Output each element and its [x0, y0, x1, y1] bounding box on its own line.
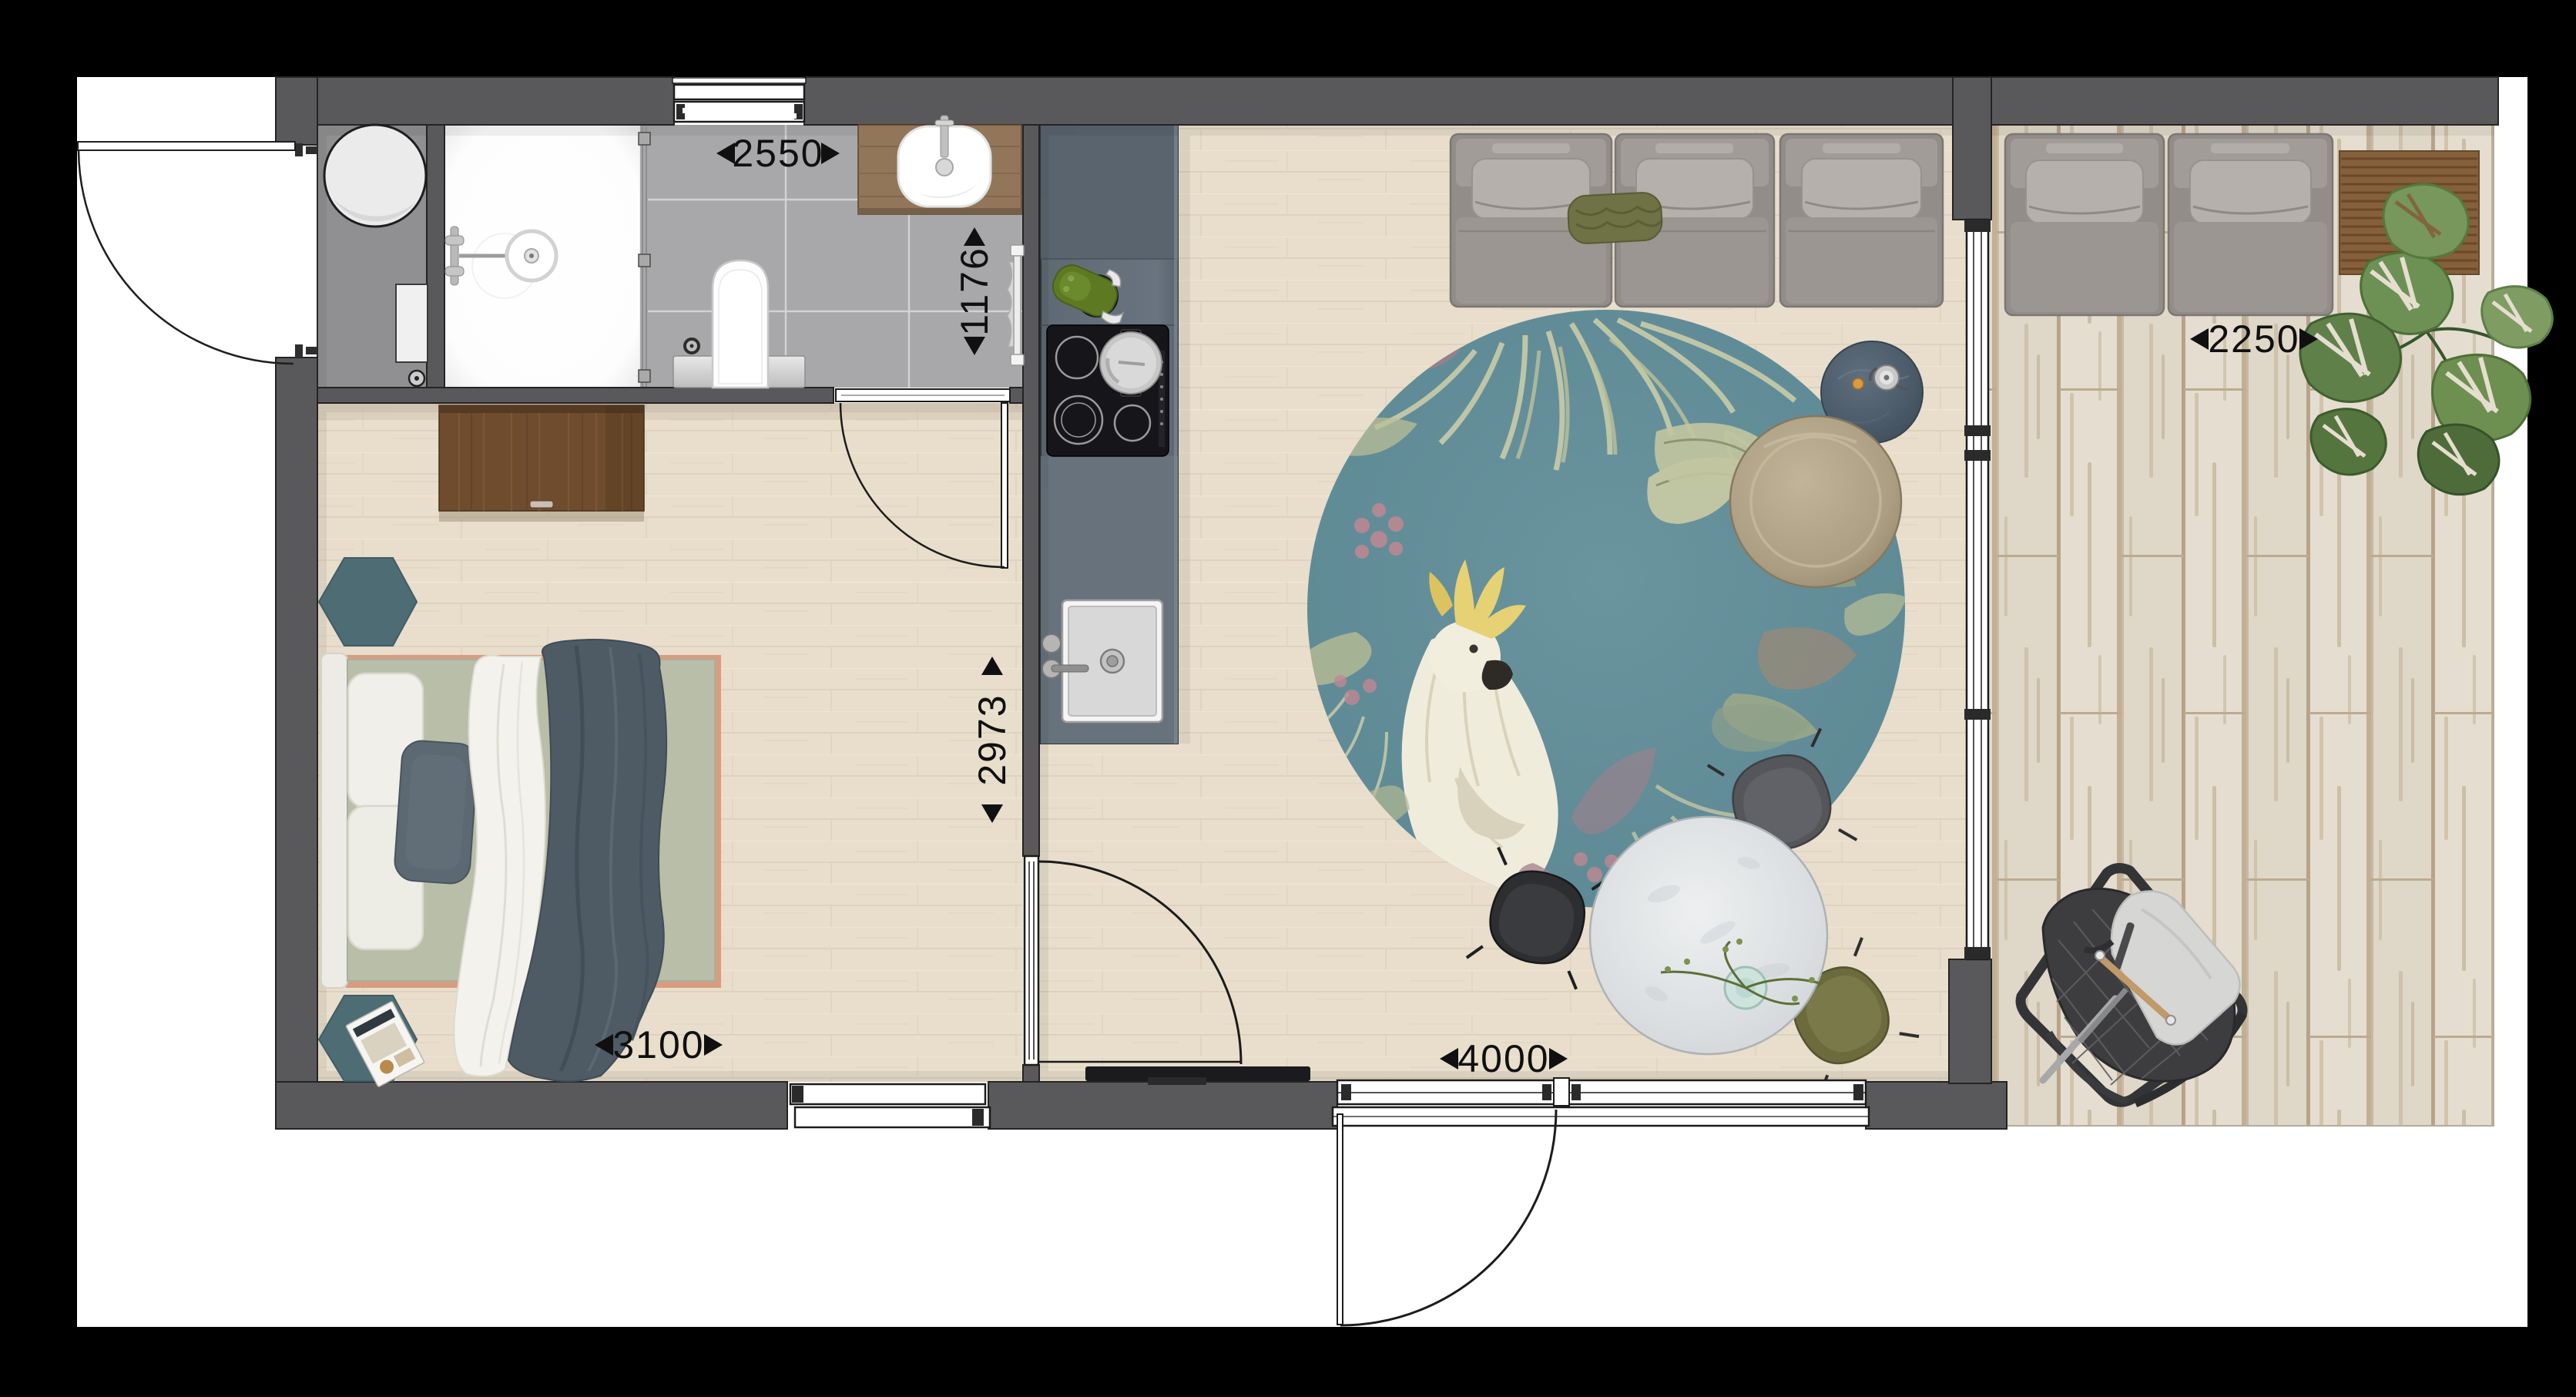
svg-text:4000: 4000 — [1457, 1037, 1549, 1080]
svg-text:3100: 3100 — [612, 1023, 704, 1066]
svg-text:1176: 1176 — [953, 247, 996, 336]
svg-text:2250: 2250 — [2208, 317, 2299, 361]
svg-text:2973: 2973 — [971, 693, 1014, 785]
svg-text:2550: 2550 — [732, 132, 823, 175]
